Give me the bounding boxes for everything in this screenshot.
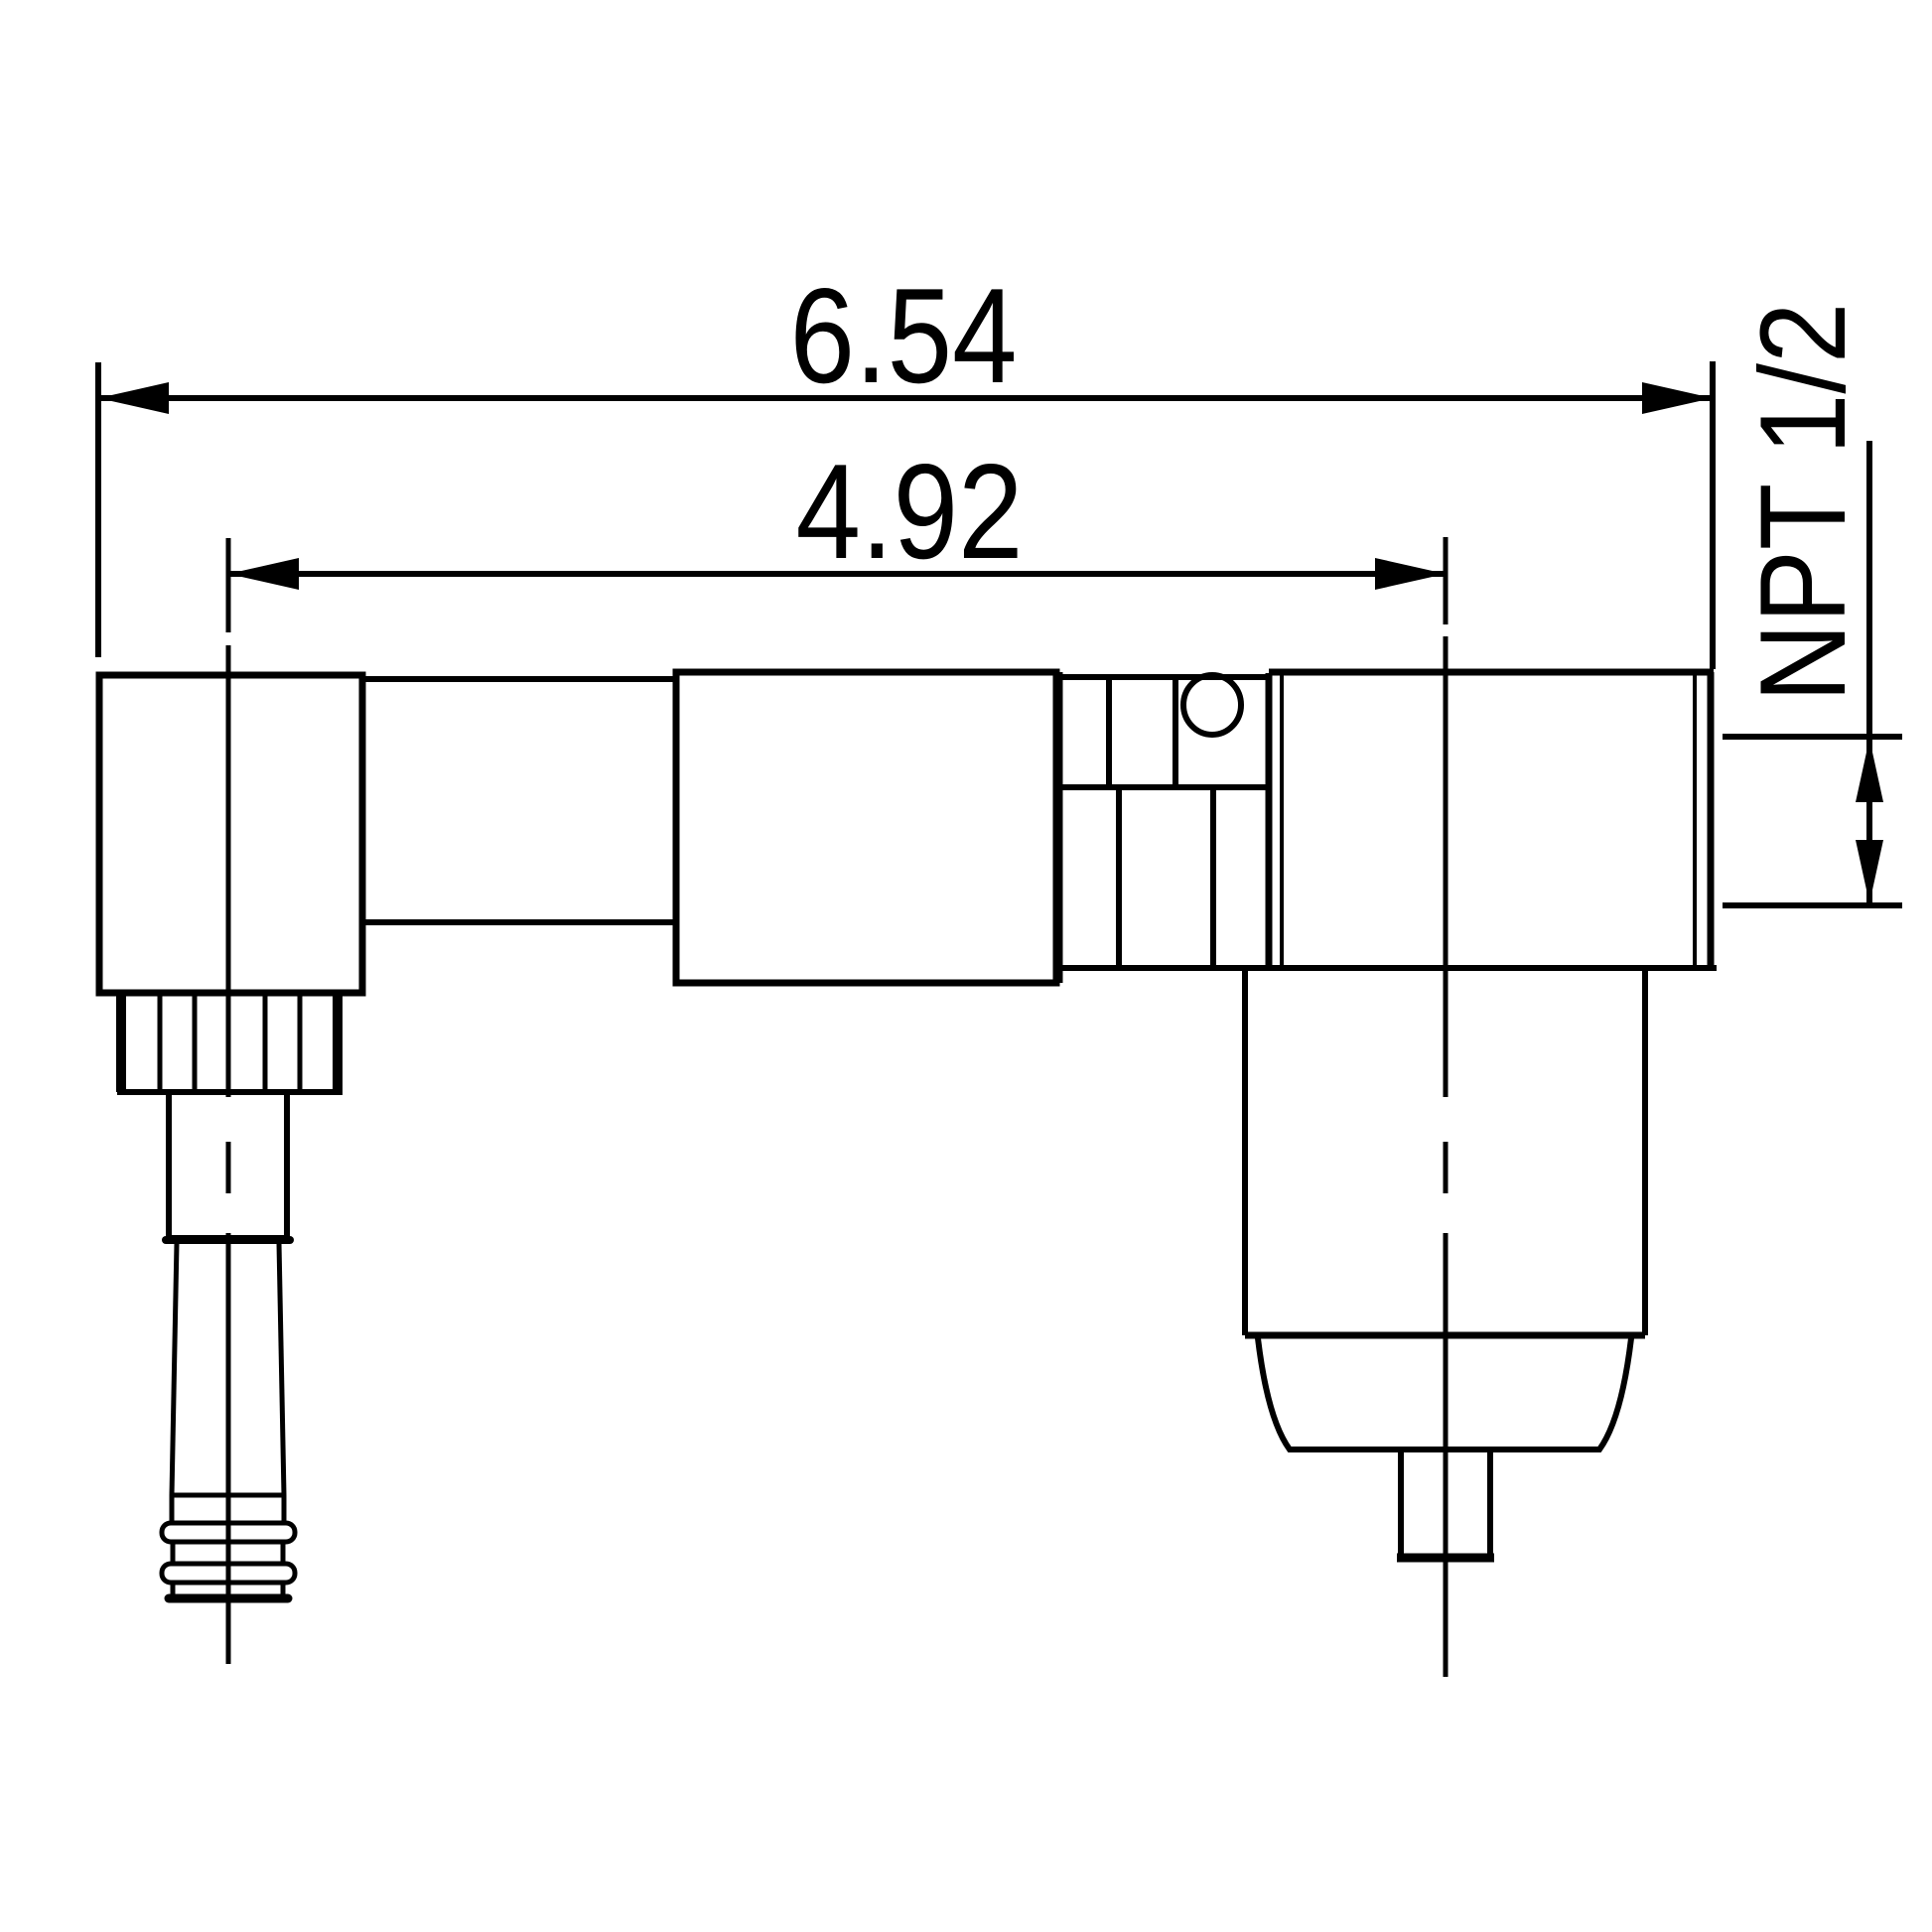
svg-text:NPT 1/2: NPT 1/2 bbox=[1733, 303, 1870, 703]
svg-text:6.54: 6.54 bbox=[790, 260, 1018, 411]
svg-text:4.92: 4.92 bbox=[796, 436, 1024, 587]
